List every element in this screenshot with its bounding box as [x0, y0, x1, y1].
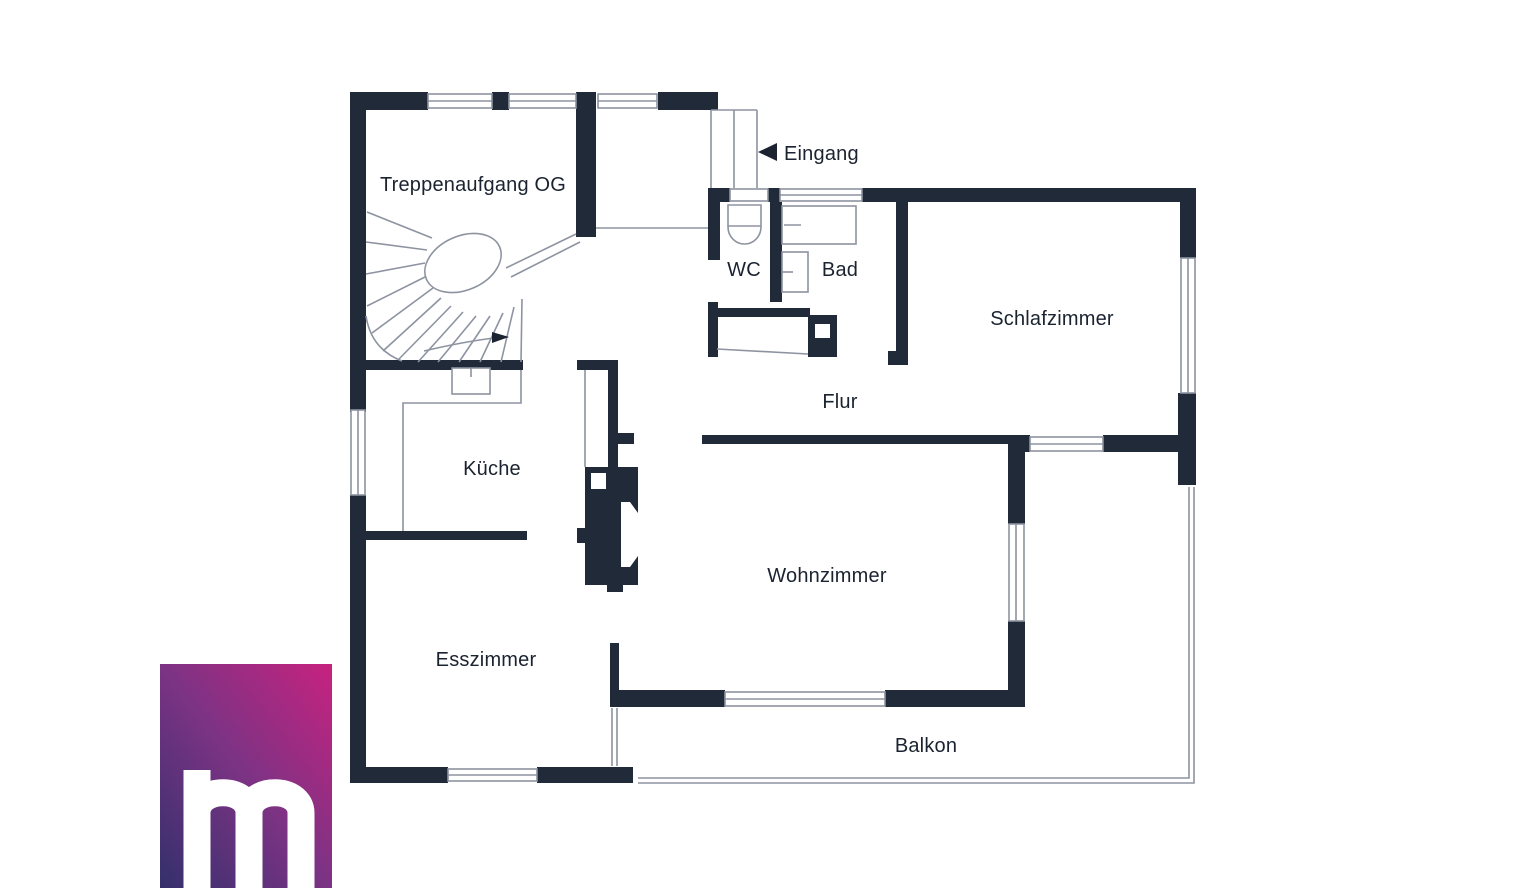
floor-plan-svg: Treppenaufgang OG Eingang WC Bad Schlafz… [0, 0, 1528, 888]
wall-top-bedroom [862, 188, 1196, 202]
closet-wall [716, 308, 810, 317]
label-wohnzimmer: Wohnzimmer [767, 565, 887, 587]
fireplace-stub [607, 583, 623, 592]
closet-sliding-door [717, 349, 808, 354]
fireplace-nub [577, 528, 585, 543]
wall-living-bottom [610, 690, 725, 707]
label-flur: Flur [822, 391, 857, 413]
wall-living-bottom [885, 690, 1025, 707]
wall-bedroom-bottom [1103, 435, 1178, 452]
label-treppenaufgang: Treppenaufgang OG [380, 174, 566, 196]
wall-dining-bottom [350, 767, 448, 783]
fixtures [452, 205, 856, 567]
wall [658, 92, 718, 110]
wall [492, 92, 509, 110]
label-schlafzimmer: Schlafzimmer [990, 308, 1114, 330]
wall-top-bath [708, 188, 730, 202]
wall-kitchen-dining [366, 531, 527, 540]
wall-left-outer [350, 495, 366, 783]
closet-inset [815, 324, 830, 338]
entrance-arrow-icon [758, 143, 777, 161]
chimney-wall [608, 370, 618, 470]
stair-railing [511, 242, 580, 277]
fireplace-opening [621, 502, 638, 567]
wall-wc-bath [770, 202, 782, 302]
wall-living-right [1008, 444, 1025, 524]
wall-living-right [1008, 621, 1025, 707]
wall-dining-living-stub [610, 643, 619, 690]
brand-logo [160, 664, 332, 888]
label-balkon: Balkon [895, 735, 957, 757]
wall-wc-left [708, 202, 720, 260]
wall-kitchen-top [366, 360, 523, 370]
stair-center [415, 222, 510, 304]
floor-plan-page: Treppenaufgang OG Eingang WC Bad Schlafz… [0, 0, 1528, 888]
staircase [366, 212, 580, 362]
label-bad: Bad [822, 259, 858, 281]
label-esszimmer: Esszimmer [436, 649, 537, 671]
wall-bedroom-bottom [1008, 435, 1030, 452]
door-jamb [888, 351, 896, 365]
entrance-door-opening [730, 189, 768, 201]
stair-railing [506, 234, 576, 268]
label-wc: WC [727, 259, 761, 281]
wall-right-outer [1178, 393, 1196, 485]
wall-stair-stub [576, 92, 596, 237]
toilet [728, 205, 761, 244]
label-kueche: Küche [463, 458, 521, 480]
flue-inset [591, 473, 606, 489]
wall-top-bath [768, 188, 780, 202]
wall-hall-bedroom [896, 202, 908, 365]
wall-hall-living [702, 435, 1008, 444]
wall-left-outer [350, 92, 366, 412]
chimney-wall [577, 360, 618, 370]
label-eingang: Eingang [784, 143, 859, 165]
wall-dining-bottom [537, 767, 633, 783]
chimney-nub [618, 433, 634, 444]
